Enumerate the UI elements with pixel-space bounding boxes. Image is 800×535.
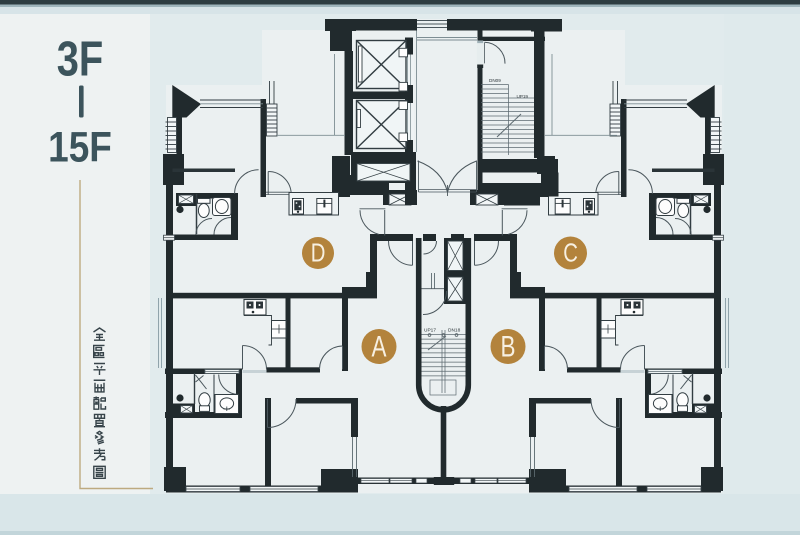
svg-text:DN18: DN18 [448, 328, 461, 334]
svg-text:UP19: UP19 [517, 94, 529, 99]
svg-text:A: A [371, 329, 386, 363]
svg-text:15F: 15F [48, 124, 112, 171]
svg-text:B: B [500, 329, 515, 363]
svg-text:D: D [311, 238, 326, 267]
svg-text:C: C [563, 238, 578, 267]
svg-text:DN09: DN09 [489, 78, 501, 83]
svg-text:3F: 3F [57, 30, 104, 86]
svg-text:UP17: UP17 [424, 328, 436, 334]
